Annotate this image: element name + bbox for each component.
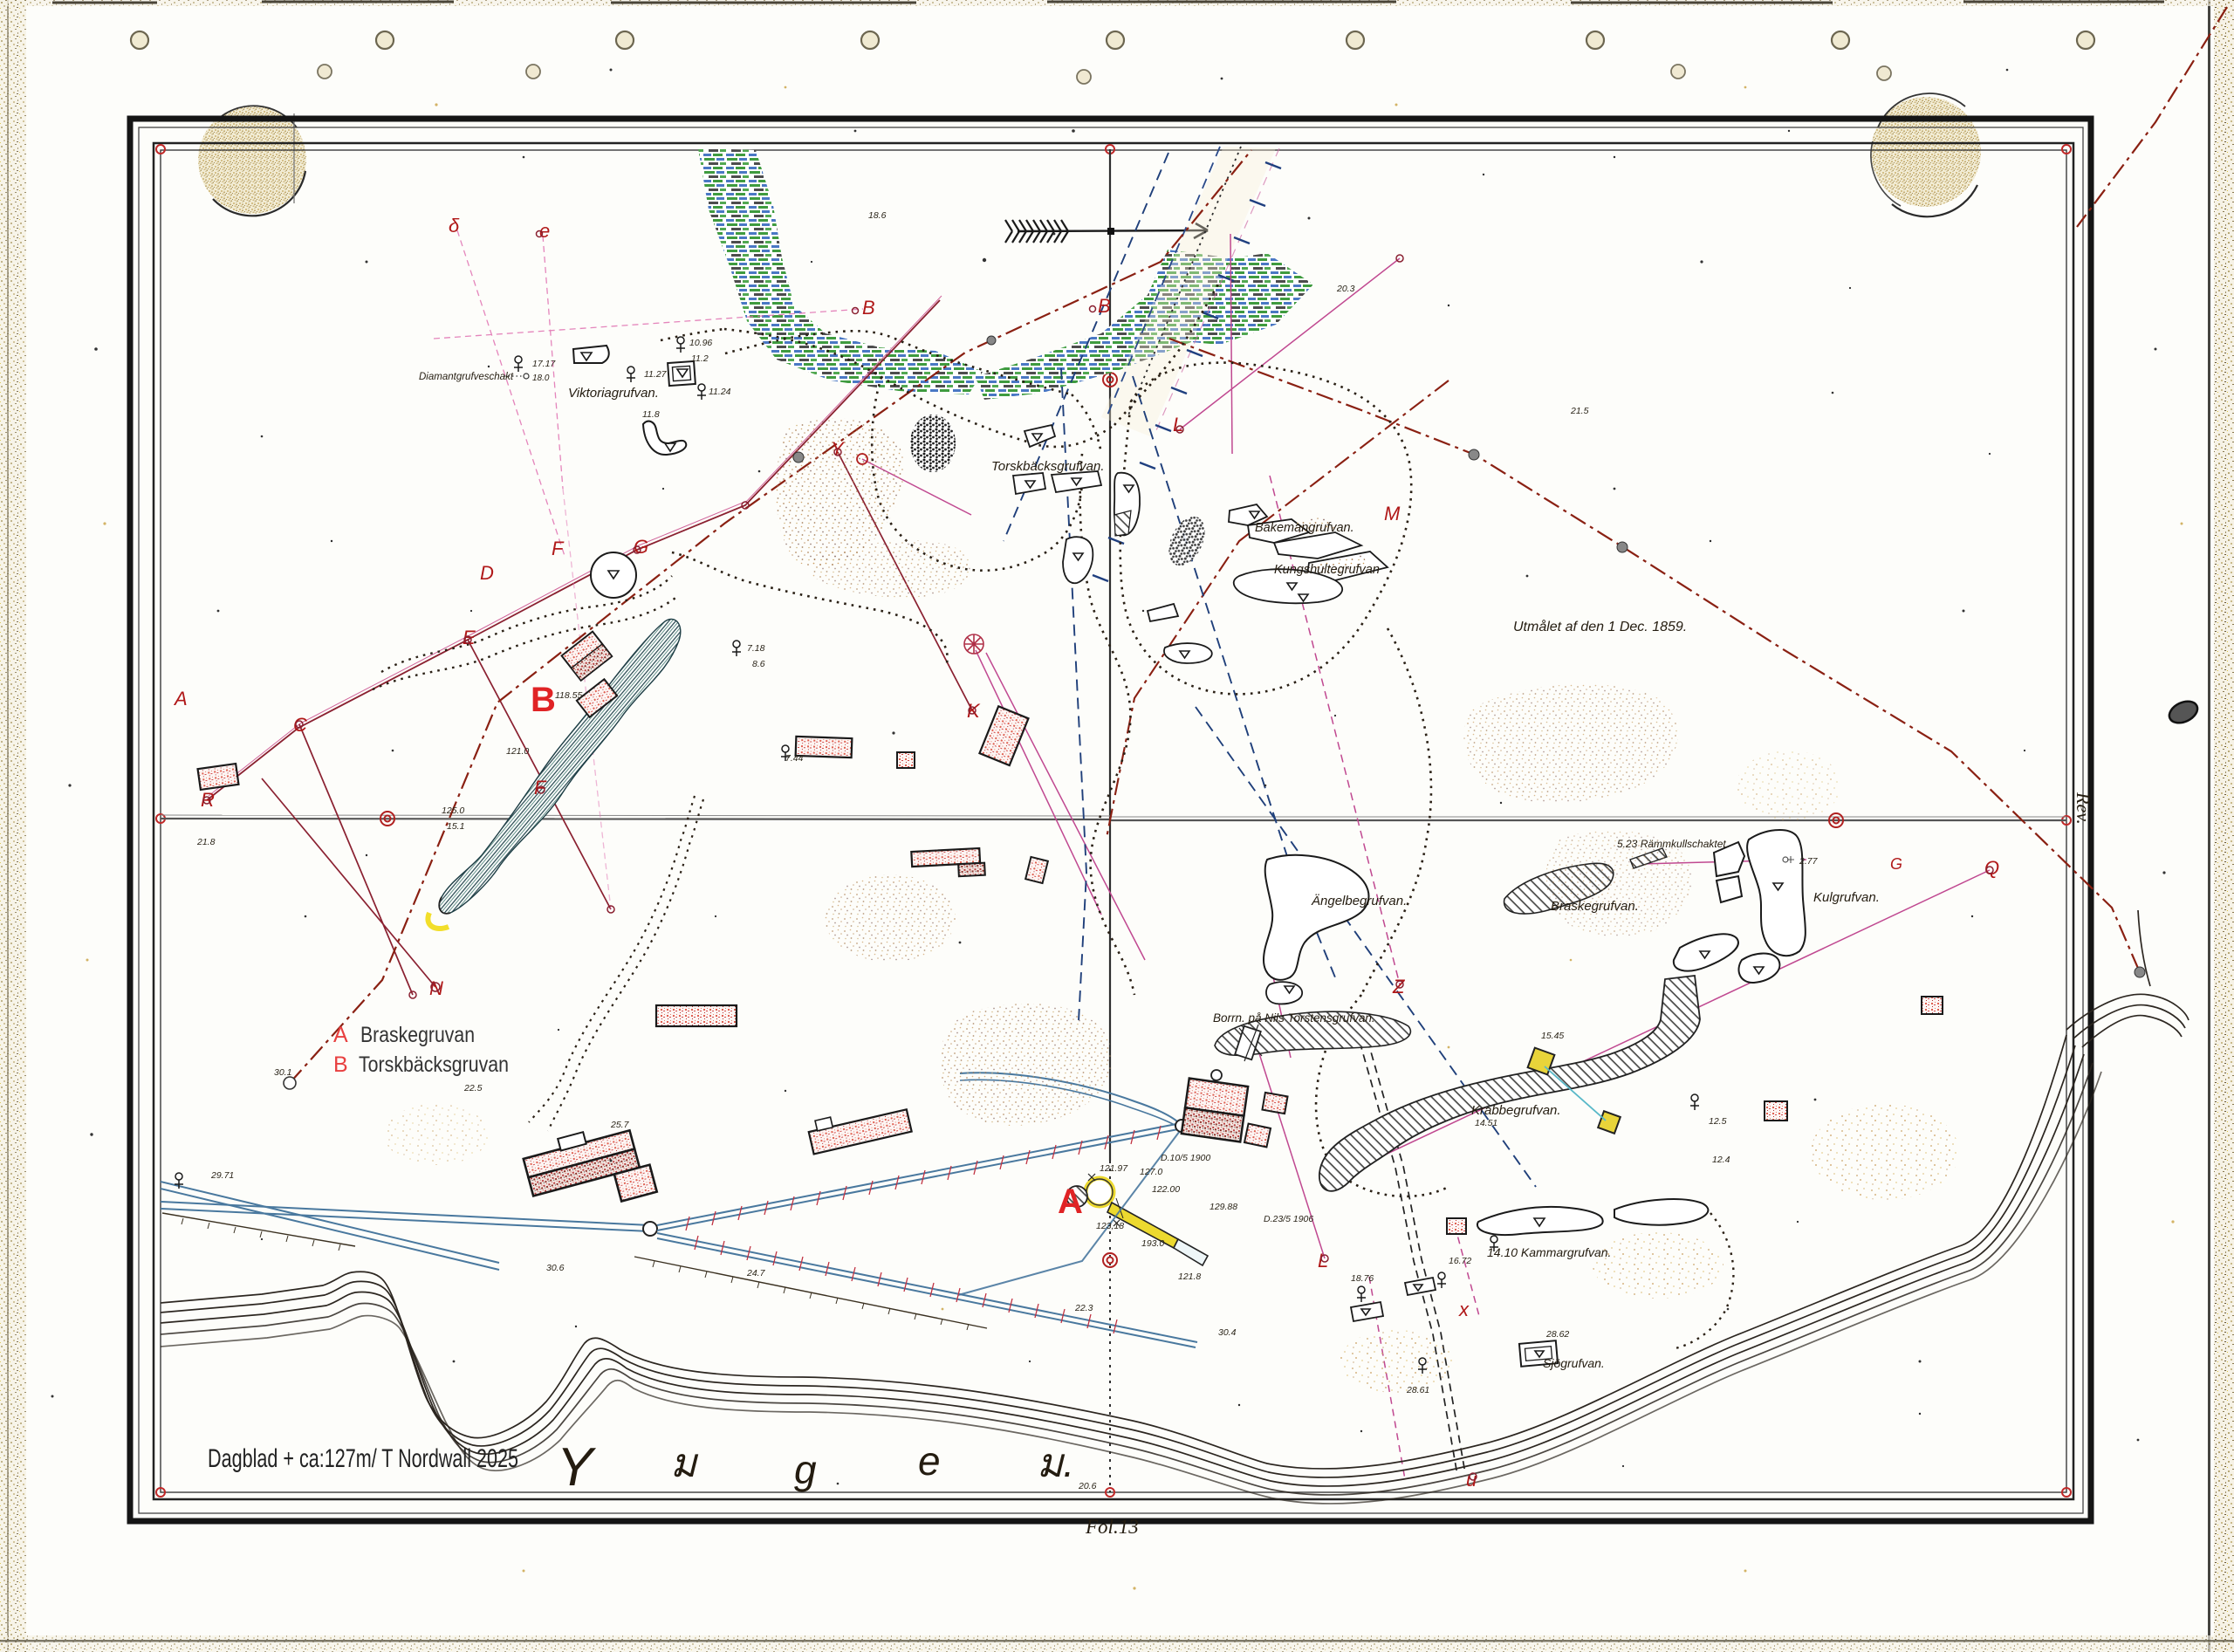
svg-text:29.71: 29.71 — [210, 1170, 234, 1181]
svg-text:122.00: 122.00 — [1152, 1184, 1180, 1195]
svg-text:Fol.13: Fol.13 — [1085, 1516, 1139, 1538]
svg-text:Kungshultegrufvan: Kungshultegrufvan — [1274, 563, 1380, 577]
svg-text:B: B — [1098, 295, 1111, 317]
svg-text:Bakemangrufvan.: Bakemangrufvan. — [1255, 521, 1354, 535]
svg-text:δ: δ — [449, 215, 460, 236]
svg-text:F: F — [534, 777, 547, 799]
svg-text:20.3: 20.3 — [1336, 284, 1355, 294]
svg-text:25.7: 25.7 — [610, 1120, 630, 1130]
svg-text:15.1: 15.1 — [447, 821, 464, 832]
svg-text:11.2: 11.2 — [691, 353, 709, 364]
svg-text:20.6: 20.6 — [1078, 1481, 1097, 1491]
svg-text:Borrn. på Nils Torstensgrufvan: Borrn. på Nils Torstensgrufvan. — [1213, 1011, 1375, 1025]
svg-text:7.18: 7.18 — [747, 643, 765, 654]
svg-text:A: A — [333, 1023, 348, 1047]
svg-text:Torskbäcksgruvan: Torskbäcksgruvan — [359, 1052, 509, 1077]
svg-text:7.44: 7.44 — [785, 753, 804, 764]
svg-text:D: D — [480, 562, 494, 584]
svg-text:129.88: 129.88 — [1210, 1202, 1237, 1212]
svg-text:17.17: 17.17 — [532, 359, 556, 369]
svg-text:30.4: 30.4 — [1218, 1327, 1237, 1338]
svg-text:18.76: 18.76 — [1351, 1273, 1374, 1284]
svg-text:21.5: 21.5 — [1570, 406, 1589, 416]
svg-text:D.10/5 1900: D.10/5 1900 — [1161, 1153, 1210, 1163]
svg-text:30.6: 30.6 — [546, 1263, 565, 1273]
svg-text:12.4: 12.4 — [1712, 1155, 1730, 1165]
svg-text:Diamantgrufveschakt: Diamantgrufveschakt — [419, 372, 514, 382]
svg-text:2.77: 2.77 — [1799, 856, 1819, 867]
svg-text:10.96: 10.96 — [689, 338, 712, 348]
svg-text:x: x — [1458, 1299, 1470, 1320]
svg-text:Torskbäcksgrufvan.: Torskbäcksgrufvan. — [991, 459, 1105, 474]
svg-text:15.45: 15.45 — [1541, 1031, 1564, 1041]
svg-text:A: A — [173, 688, 188, 709]
svg-text:5.23 Rämmkullschaktet.: 5.23 Rämmkullschaktet. — [1617, 838, 1729, 850]
svg-text:Z: Z — [1392, 976, 1406, 997]
svg-text:21.8: 21.8 — [196, 837, 216, 847]
svg-text:Krabbegrufvan.: Krabbegrufvan. — [1471, 1103, 1561, 1118]
svg-text:22.3: 22.3 — [1074, 1303, 1093, 1313]
svg-text:30.1: 30.1 — [274, 1067, 291, 1078]
svg-text:121.0: 121.0 — [506, 746, 529, 757]
svg-text:e: e — [918, 1438, 941, 1484]
svg-text:22.5: 22.5 — [463, 1083, 483, 1093]
svg-text:12.5: 12.5 — [1709, 1116, 1727, 1127]
svg-text:Braskegruvan: Braskegruvan — [360, 1023, 475, 1047]
svg-text:D.23/5 1906: D.23/5 1906 — [1264, 1214, 1313, 1224]
svg-text:M: M — [1384, 503, 1401, 524]
svg-text:28.61: 28.61 — [1406, 1385, 1429, 1395]
svg-text:G: G — [1890, 855, 1902, 873]
svg-text:121.8: 121.8 — [1178, 1272, 1201, 1282]
svg-text:ม: ม — [670, 1440, 699, 1485]
svg-text:18.6: 18.6 — [868, 210, 887, 221]
svg-text:118.55: 118.55 — [555, 690, 582, 701]
svg-text:A: A — [1058, 1182, 1083, 1221]
svg-text:11.27: 11.27 — [644, 369, 668, 380]
svg-text:Kulgrufvan.: Kulgrufvan. — [1813, 890, 1880, 905]
svg-text:16.72: 16.72 — [1449, 1256, 1471, 1266]
svg-text:24.7: 24.7 — [746, 1268, 766, 1278]
svg-text:28.62: 28.62 — [1545, 1329, 1569, 1340]
svg-text:Ängelbegrufvan.: Ängelbegrufvan. — [1311, 894, 1407, 908]
svg-text:Braskegrufvan.: Braskegrufvan. — [1551, 899, 1639, 914]
svg-text:193.0: 193.0 — [1141, 1238, 1164, 1249]
svg-text:11.24: 11.24 — [709, 387, 731, 397]
svg-text:14.51: 14.51 — [1475, 1118, 1497, 1128]
svg-text:B: B — [333, 1052, 348, 1077]
svg-text:125.0: 125.0 — [442, 805, 464, 816]
svg-text:F: F — [552, 538, 565, 559]
svg-text:ม.: ม. — [1037, 1440, 1074, 1485]
svg-text:Sjögrufvan.: Sjögrufvan. — [1543, 1356, 1605, 1370]
svg-text:8.6: 8.6 — [752, 659, 765, 669]
svg-text:Dagblad + ca:127m/ T Nordwall: Dagblad + ca:127m/ T Nordwall 2025 — [208, 1444, 518, 1473]
svg-text:B: B — [531, 681, 556, 719]
svg-text:18.0: 18.0 — [532, 374, 550, 383]
svg-text:Utmålet af den 1 Dec. 1859.: Utmålet af den 1 Dec. 1859. — [1513, 619, 1687, 634]
svg-text:11.8: 11.8 — [642, 409, 660, 420]
svg-text:Viktoriagrufvan.: Viktoriagrufvan. — [568, 386, 659, 401]
svg-text:123,18: 123,18 — [1096, 1221, 1124, 1231]
svg-text:B: B — [862, 297, 875, 319]
svg-text:g: g — [794, 1447, 817, 1492]
svg-text:Y: Y — [557, 1437, 597, 1498]
svg-text:Rev.: Rev. — [2073, 792, 2094, 825]
svg-text:14.10 Kammargrufvan.: 14.10 Kammargrufvan. — [1487, 1245, 1611, 1259]
svg-text:127.0: 127.0 — [1140, 1167, 1162, 1177]
svg-text:121.97: 121.97 — [1100, 1163, 1128, 1174]
